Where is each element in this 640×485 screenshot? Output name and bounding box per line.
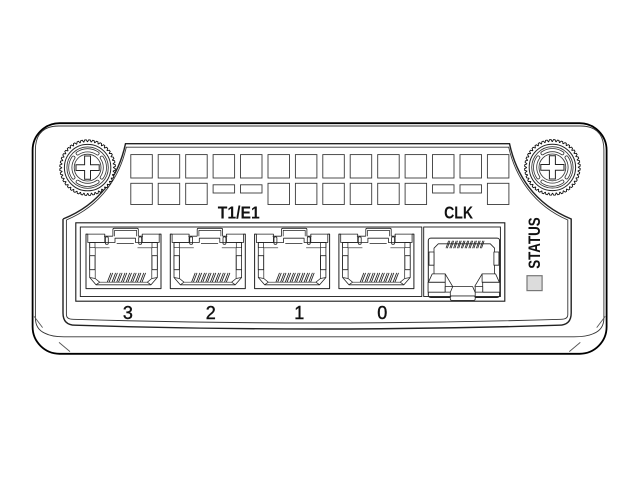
svg-text:1: 1 (294, 303, 304, 323)
svg-text:CLK: CLK (444, 202, 473, 222)
svg-text:3: 3 (123, 303, 133, 323)
svg-text:2: 2 (206, 303, 216, 323)
svg-text:STATUS: STATUS (525, 217, 544, 269)
svg-text:0: 0 (377, 303, 387, 323)
svg-text:T1/E1: T1/E1 (218, 202, 260, 222)
